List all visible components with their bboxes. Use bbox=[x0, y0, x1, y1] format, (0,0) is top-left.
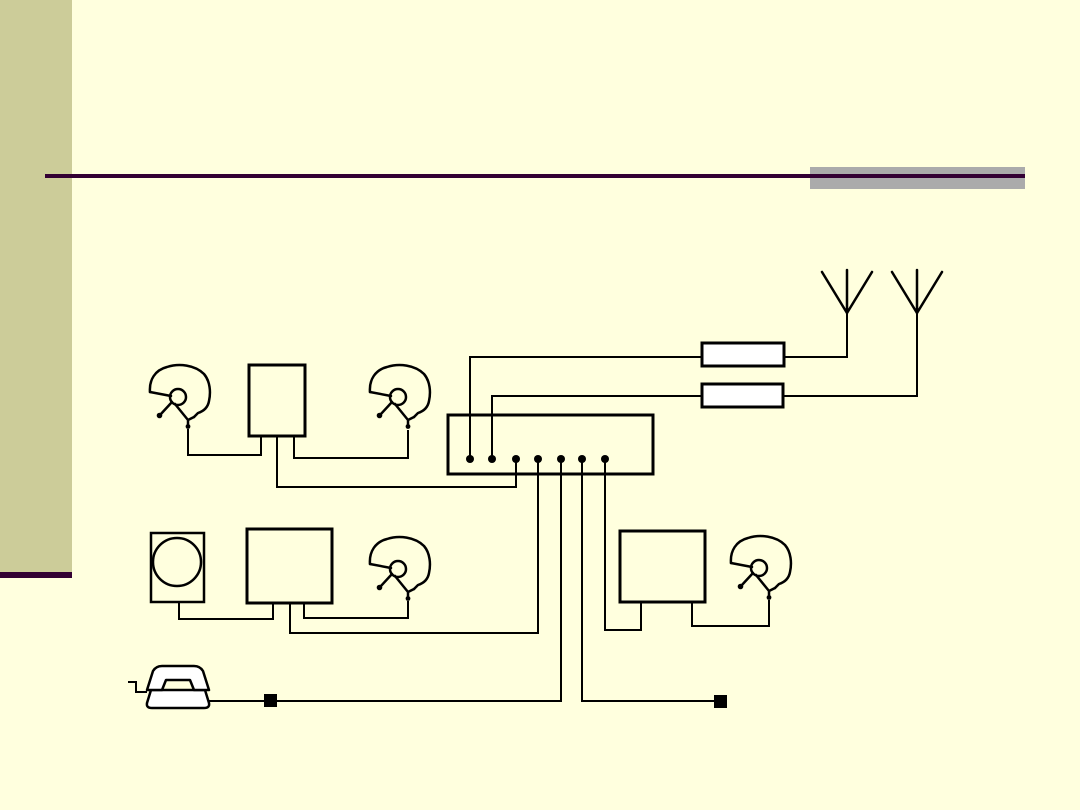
slide-canvas bbox=[0, 0, 1080, 810]
connector-square-1 bbox=[264, 694, 277, 707]
port-dot-2 bbox=[488, 455, 496, 463]
port-dot-6 bbox=[578, 455, 586, 463]
port-dot-4 bbox=[534, 455, 542, 463]
filter-box-2 bbox=[702, 384, 783, 407]
presentation-slide bbox=[0, 0, 1080, 810]
port-dot-5 bbox=[557, 455, 565, 463]
sidebar-accent-strip bbox=[0, 572, 72, 578]
port-dot-7 bbox=[601, 455, 609, 463]
telephone-base bbox=[147, 690, 209, 708]
title-rule-line bbox=[45, 174, 1025, 178]
filter-box-1 bbox=[702, 343, 784, 366]
connector-square-2 bbox=[714, 695, 727, 708]
port-dot-3 bbox=[512, 455, 520, 463]
sidebar bbox=[0, 0, 72, 572]
port-dot-1 bbox=[466, 455, 474, 463]
